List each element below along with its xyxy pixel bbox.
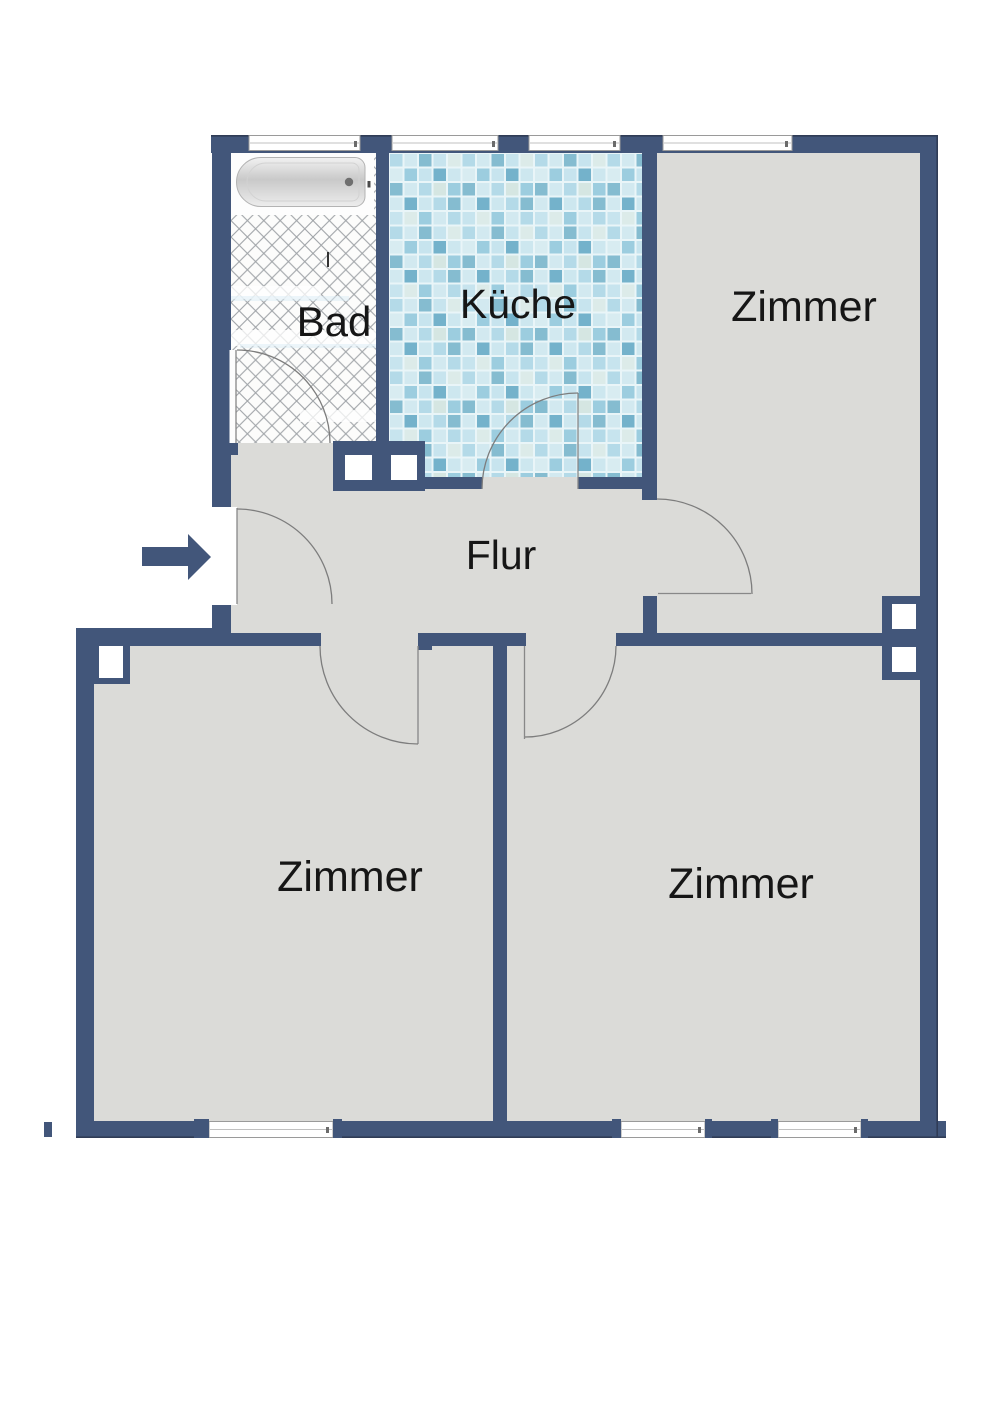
- svg-text:Flur: Flur: [466, 532, 537, 578]
- svg-text:Küche: Küche: [460, 281, 576, 327]
- svg-text:Zimmer: Zimmer: [731, 283, 877, 331]
- svg-text:Bad: Bad: [297, 298, 372, 345]
- svg-text:Zimmer: Zimmer: [668, 860, 814, 908]
- svg-text:Zimmer: Zimmer: [277, 853, 423, 901]
